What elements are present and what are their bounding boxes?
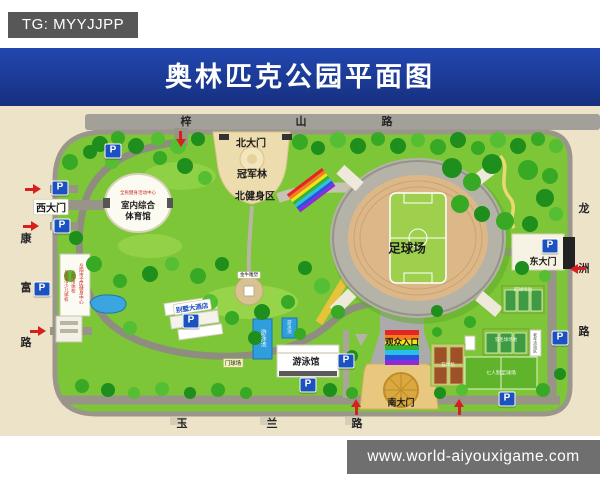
tennis-court-label: 网球场地 xyxy=(514,287,532,293)
parking-icon: P xyxy=(183,314,200,329)
school-sign-3: 岳阳市少儿体校 xyxy=(64,270,69,302)
entrance-arrow-icon xyxy=(351,399,361,415)
football7-field-label: 七人制足球场 xyxy=(486,370,516,377)
parking-icon: P xyxy=(300,378,317,393)
screenshot-root: TG: MYYJJPP 奥林匹克公园平面图 xyxy=(0,0,600,480)
north-gate-label: 北大门 xyxy=(236,135,266,150)
road-kangfu-char-1: 康 xyxy=(21,230,32,246)
entrance-arrow-icon xyxy=(23,221,39,231)
gateball-court-label: 门球场 xyxy=(224,359,243,367)
road-kangfu-char-3: 路 xyxy=(21,334,32,350)
road-zishan-char-1: 梓 xyxy=(181,113,192,129)
road-kangfu-char-2: 富 xyxy=(21,279,32,295)
champion-forest-label: 冠军林 xyxy=(237,166,267,181)
entrance-arrow-icon xyxy=(30,326,46,336)
entrance-arrow-icon xyxy=(570,264,586,274)
road-zishan-char-2: 山 xyxy=(296,113,307,129)
parking-icon: P xyxy=(34,282,51,297)
school-sign-2: 岳阳市体校 xyxy=(71,271,76,294)
road-longzhou-char-1: 龙 xyxy=(579,200,590,216)
page-title: 奥林匹克公园平面图 xyxy=(0,48,600,106)
swimming-pool-small-label: 游泳池 xyxy=(287,320,292,334)
parking-icon: P xyxy=(52,181,69,196)
entrance-arrow-icon xyxy=(454,399,464,415)
road-zishan-char-3: 路 xyxy=(382,113,393,129)
road-yulan-char-2: 兰 xyxy=(267,415,278,431)
west-gate-label: 西大门 xyxy=(34,200,68,215)
badminton-court-label: 羽毛球场地 xyxy=(495,337,518,343)
east-gate-label: 东大门 xyxy=(529,255,556,268)
entrance-arrow-icon xyxy=(176,131,186,147)
entrance-arrow-icon xyxy=(25,184,41,194)
site-watermark: www.world-aiyouxigame.com xyxy=(347,440,600,474)
parking-icon: P xyxy=(105,144,122,159)
football-field-label: 足球场 xyxy=(388,238,426,257)
telegram-badge: TG: MYYJJPP xyxy=(8,12,138,38)
school-sign-1: 岳阳市全民健身中心 xyxy=(79,264,84,305)
road-yulan-char-3: 路 xyxy=(352,415,363,431)
indoor-gym-label-line2: 体育馆 xyxy=(125,210,151,222)
indoor-gym-subtitle: 全民健身活动中心 xyxy=(120,190,156,196)
road-yulan-char-1: 玉 xyxy=(177,415,188,431)
map-title-bar: 奥林匹克公园平面图 xyxy=(0,48,600,106)
natatorium-label: 游泳馆 xyxy=(292,355,319,368)
parking-icon: P xyxy=(338,354,355,369)
basketball-court-label: 篮球场 xyxy=(441,362,455,368)
golden-bull-statue-label: 金牛雕塑 xyxy=(238,272,260,278)
road-longzhou-char-3: 路 xyxy=(579,323,590,339)
north-fitness-label: 北健身区 xyxy=(235,188,275,203)
senior-activity-label: 老年活动区 xyxy=(533,333,537,353)
south-gate-label: 南大门 xyxy=(387,396,414,409)
swimming-pool-label: 游泳池 xyxy=(259,329,265,347)
parking-icon: P xyxy=(54,219,71,234)
spectator-entrance-label: 观众入口 xyxy=(385,336,419,348)
park-map: 梓 山 路 康 富 路 龙 洲 路 玉 兰 路 北大门 西大门 东大门 南大门 … xyxy=(0,106,600,436)
parking-icon: P xyxy=(499,392,516,407)
parking-icon: P xyxy=(542,239,559,254)
parking-icon: P xyxy=(552,331,569,346)
